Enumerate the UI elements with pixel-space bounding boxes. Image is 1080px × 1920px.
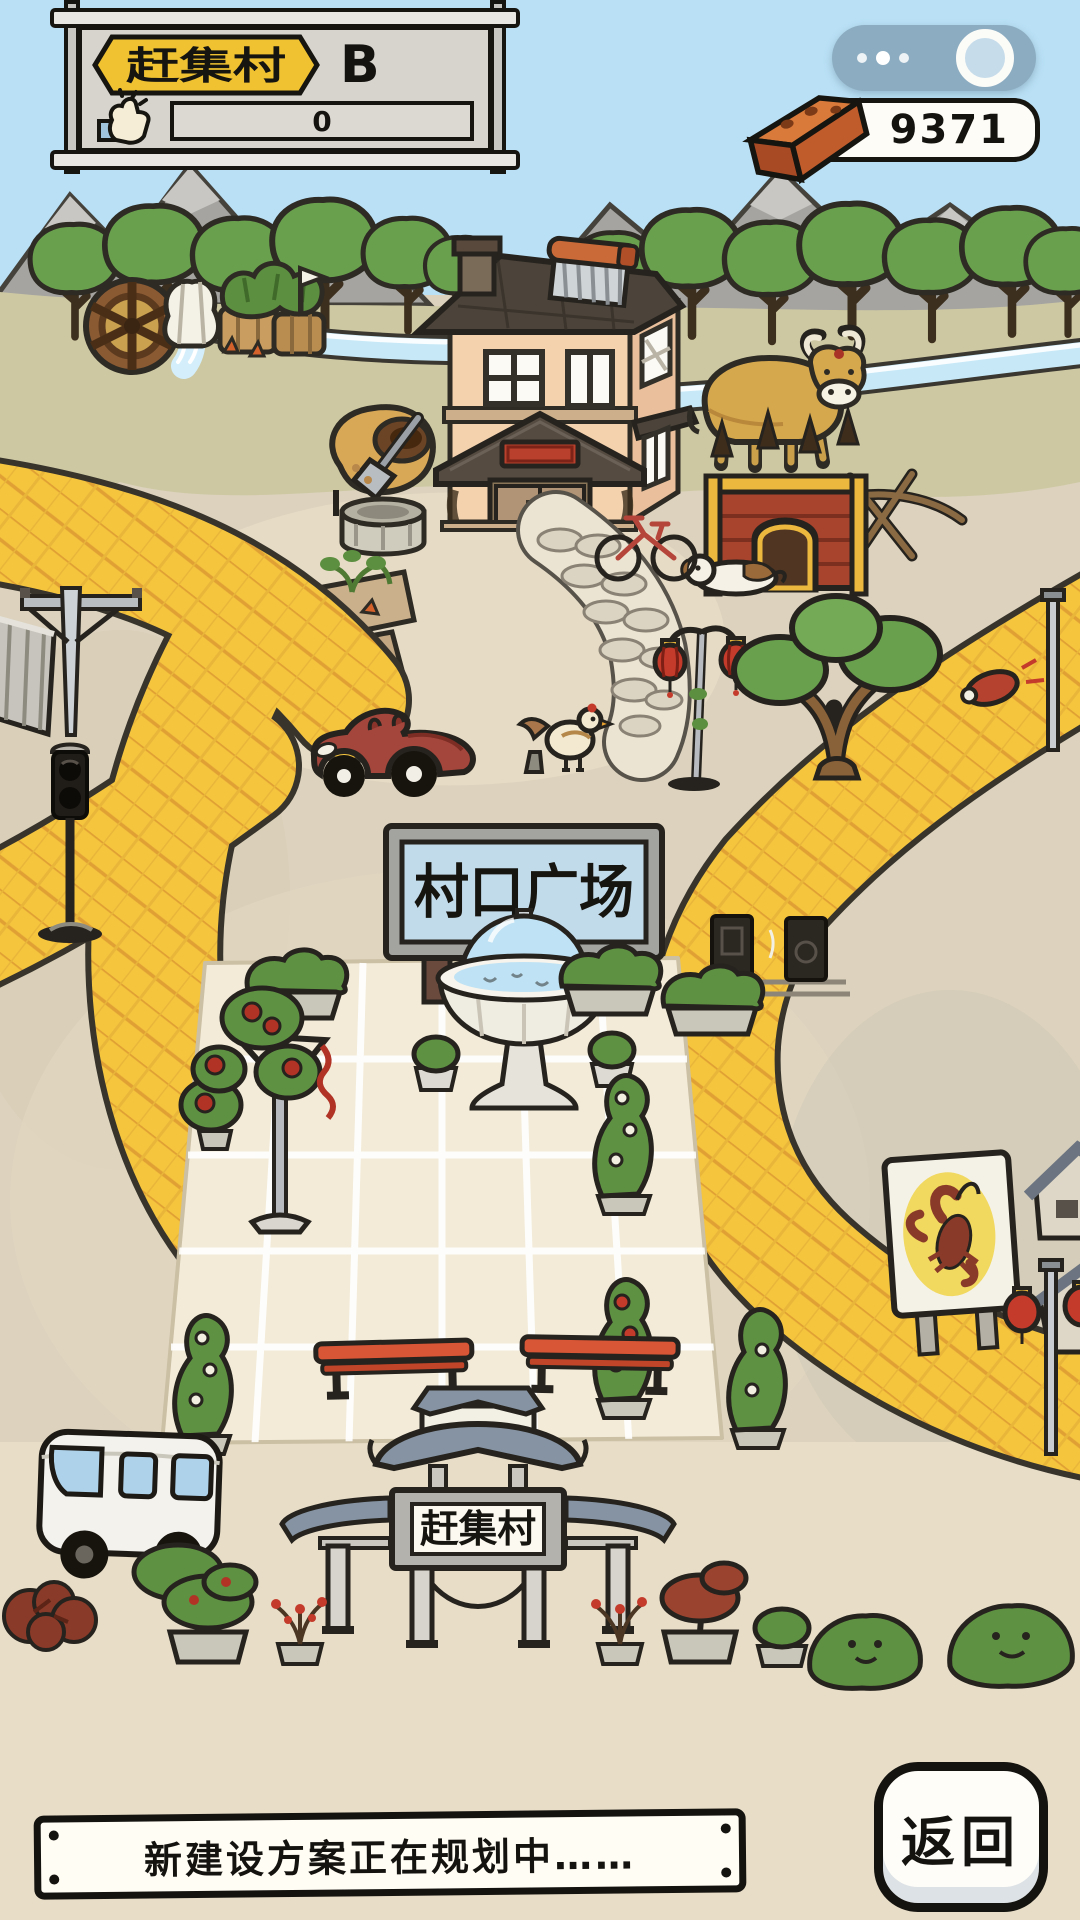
board-rail-top bbox=[50, 8, 520, 28]
gate-sign-text: 赶集村 bbox=[420, 1507, 536, 1551]
more-dots-icon bbox=[899, 53, 909, 63]
more-dots-icon bbox=[876, 51, 890, 65]
like-button[interactable] bbox=[92, 88, 158, 146]
board-rail-bottom bbox=[50, 150, 520, 170]
village-name: 赶集村 bbox=[126, 44, 286, 88]
grumpy-bush bbox=[810, 1616, 921, 1689]
back-button[interactable]: 返回 bbox=[874, 1762, 1048, 1912]
minimize-button[interactable] bbox=[934, 25, 1036, 91]
board-body: 赶集村 B 0 bbox=[78, 26, 492, 152]
left-cart bbox=[0, 618, 54, 734]
rivet bbox=[721, 1823, 731, 1833]
notice-text: 新建设方案正在规划中…… bbox=[144, 1824, 637, 1884]
hedge-planter bbox=[561, 946, 661, 1014]
thumbs-up-icon bbox=[92, 88, 158, 146]
capsule-circle-icon bbox=[956, 29, 1014, 87]
hedge-planter bbox=[663, 966, 763, 1034]
rivet bbox=[721, 1867, 731, 1877]
fountain-side-pot bbox=[414, 1037, 458, 1090]
like-count: 0 bbox=[312, 105, 331, 138]
rivet bbox=[49, 1830, 59, 1840]
back-button-label: 返回 bbox=[901, 1798, 1021, 1877]
brick-counter[interactable]: 9371 bbox=[802, 98, 1040, 162]
more-dots-icon bbox=[857, 53, 867, 63]
village-name-banner: 赶集村 bbox=[92, 34, 320, 96]
village-info-board: 赶集村 B 0 bbox=[50, 0, 520, 174]
rivet bbox=[49, 1874, 59, 1884]
like-progress-bar: 0 bbox=[170, 101, 474, 141]
game-stage: 村口广场 bbox=[0, 0, 1080, 1920]
brick-count: 9371 bbox=[890, 107, 1009, 153]
village-grade: B bbox=[340, 39, 380, 91]
farm-house[interactable] bbox=[418, 237, 696, 530]
notice-banner: 新建设方案正在规划中…… bbox=[34, 1808, 747, 1899]
village-scene: 村口广场 bbox=[0, 0, 1080, 1920]
bonsai-pot bbox=[755, 1609, 809, 1666]
